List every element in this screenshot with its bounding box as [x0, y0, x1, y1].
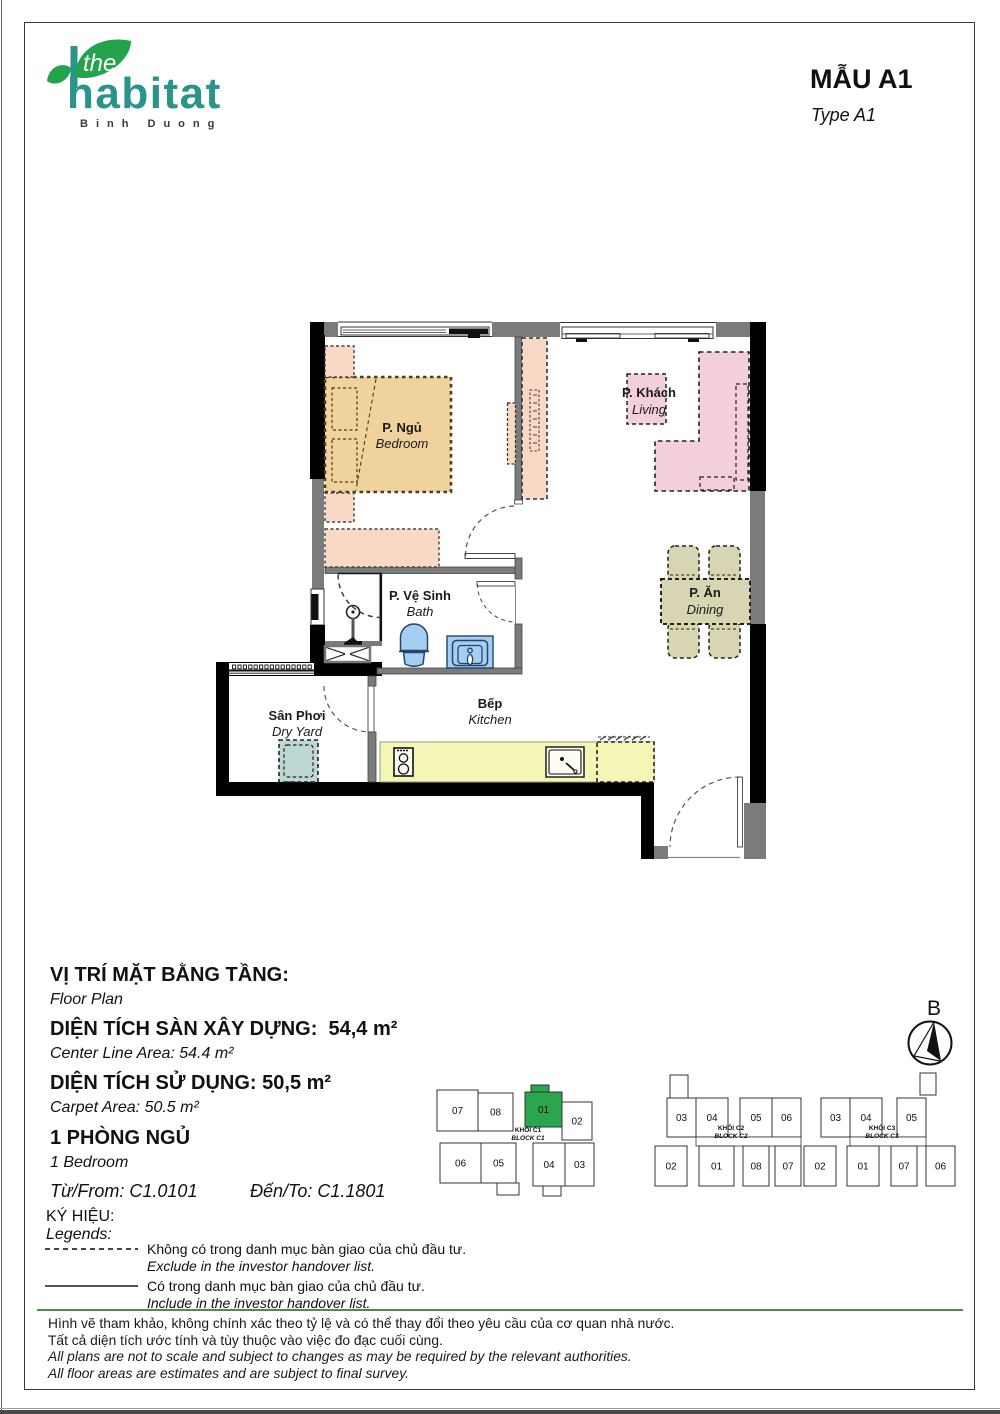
svg-text:08: 08: [490, 1108, 502, 1119]
svg-text:P. Ngủ: P. Ngủ: [382, 420, 422, 435]
svg-text:04: 04: [543, 1160, 555, 1171]
svg-text:B: B: [927, 997, 941, 1020]
svg-text:P. Vệ Sinh: P. Vệ Sinh: [389, 588, 451, 603]
svg-text:Living: Living: [632, 402, 667, 417]
svg-text:06: 06: [935, 1162, 947, 1173]
svg-text:07: 07: [452, 1106, 464, 1117]
svg-text:BLOCK C2: BLOCK C2: [714, 1133, 748, 1140]
svg-text:Bếp: Bếp: [478, 696, 503, 711]
svg-text:01: 01: [538, 1105, 550, 1116]
svg-text:07: 07: [898, 1162, 910, 1173]
svg-text:06: 06: [455, 1159, 467, 1170]
svg-text:02: 02: [571, 1117, 583, 1128]
svg-text:07: 07: [782, 1162, 794, 1173]
svg-text:03: 03: [574, 1160, 586, 1171]
svg-text:01: 01: [857, 1162, 869, 1173]
svg-text:03: 03: [676, 1113, 688, 1124]
svg-text:P. Khách: P. Khách: [622, 385, 676, 400]
svg-text:Bedroom: Bedroom: [376, 436, 429, 451]
svg-text:Bath: Bath: [407, 604, 434, 619]
svg-text:03: 03: [830, 1113, 842, 1124]
svg-text:05: 05: [906, 1113, 918, 1124]
svg-text:Sân Phơi: Sân Phơi: [269, 708, 326, 723]
svg-text:05: 05: [493, 1159, 505, 1170]
svg-text:08: 08: [750, 1162, 762, 1173]
svg-text:02: 02: [814, 1162, 826, 1173]
svg-text:P. Ăn: P. Ăn: [689, 585, 721, 600]
svg-text:BLOCK C3: BLOCK C3: [865, 1133, 899, 1140]
svg-text:Kitchen: Kitchen: [468, 712, 511, 727]
svg-text:Dining: Dining: [687, 602, 725, 617]
svg-text:06: 06: [781, 1113, 793, 1124]
svg-text:BLOCK C1: BLOCK C1: [511, 1135, 545, 1142]
svg-text:02: 02: [665, 1162, 677, 1173]
svg-text:05: 05: [750, 1113, 762, 1124]
svg-text:Dry Yard: Dry Yard: [272, 724, 323, 739]
svg-text:04: 04: [860, 1113, 872, 1124]
svg-text:01: 01: [711, 1162, 723, 1173]
svg-text:04: 04: [706, 1113, 718, 1124]
